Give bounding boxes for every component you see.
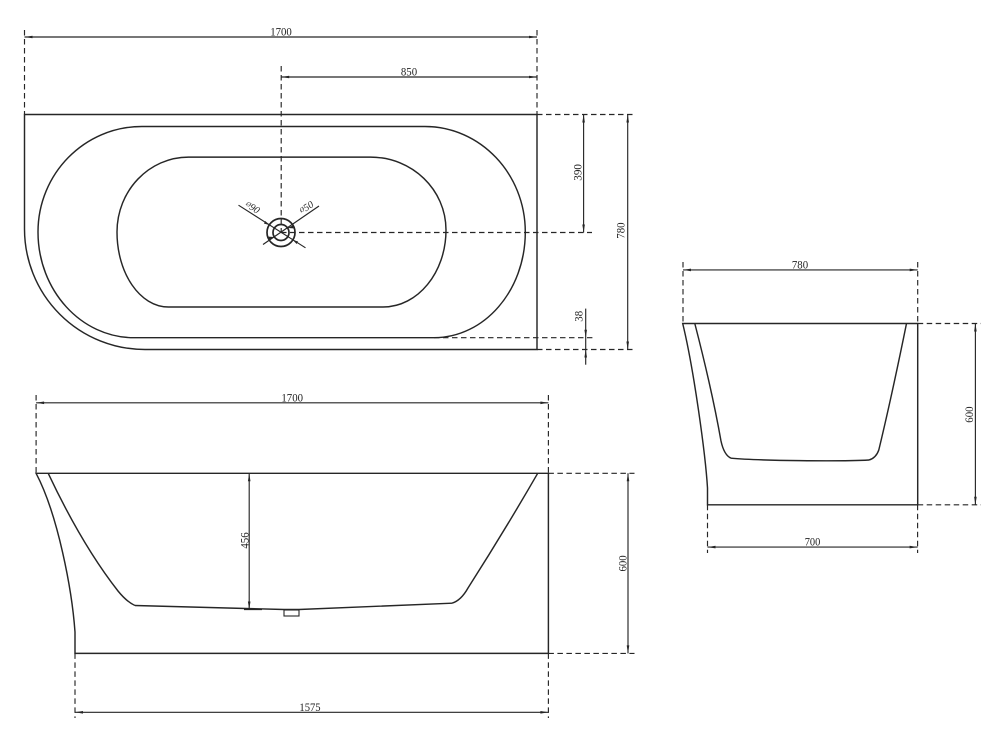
svg-text:700: 700: [805, 535, 821, 549]
svg-text:38: 38: [571, 311, 585, 322]
svg-text:390: 390: [570, 164, 584, 181]
svg-text:Ø90: Ø90: [242, 199, 261, 217]
svg-text:1700: 1700: [270, 25, 292, 39]
svg-text:456: 456: [238, 532, 252, 548]
svg-text:600: 600: [962, 407, 976, 423]
svg-text:780: 780: [792, 257, 808, 271]
svg-text:600: 600: [615, 555, 629, 571]
svg-text:850: 850: [401, 65, 417, 79]
svg-text:1575: 1575: [299, 700, 320, 714]
svg-text:780: 780: [614, 222, 628, 238]
svg-text:1700: 1700: [281, 390, 303, 404]
